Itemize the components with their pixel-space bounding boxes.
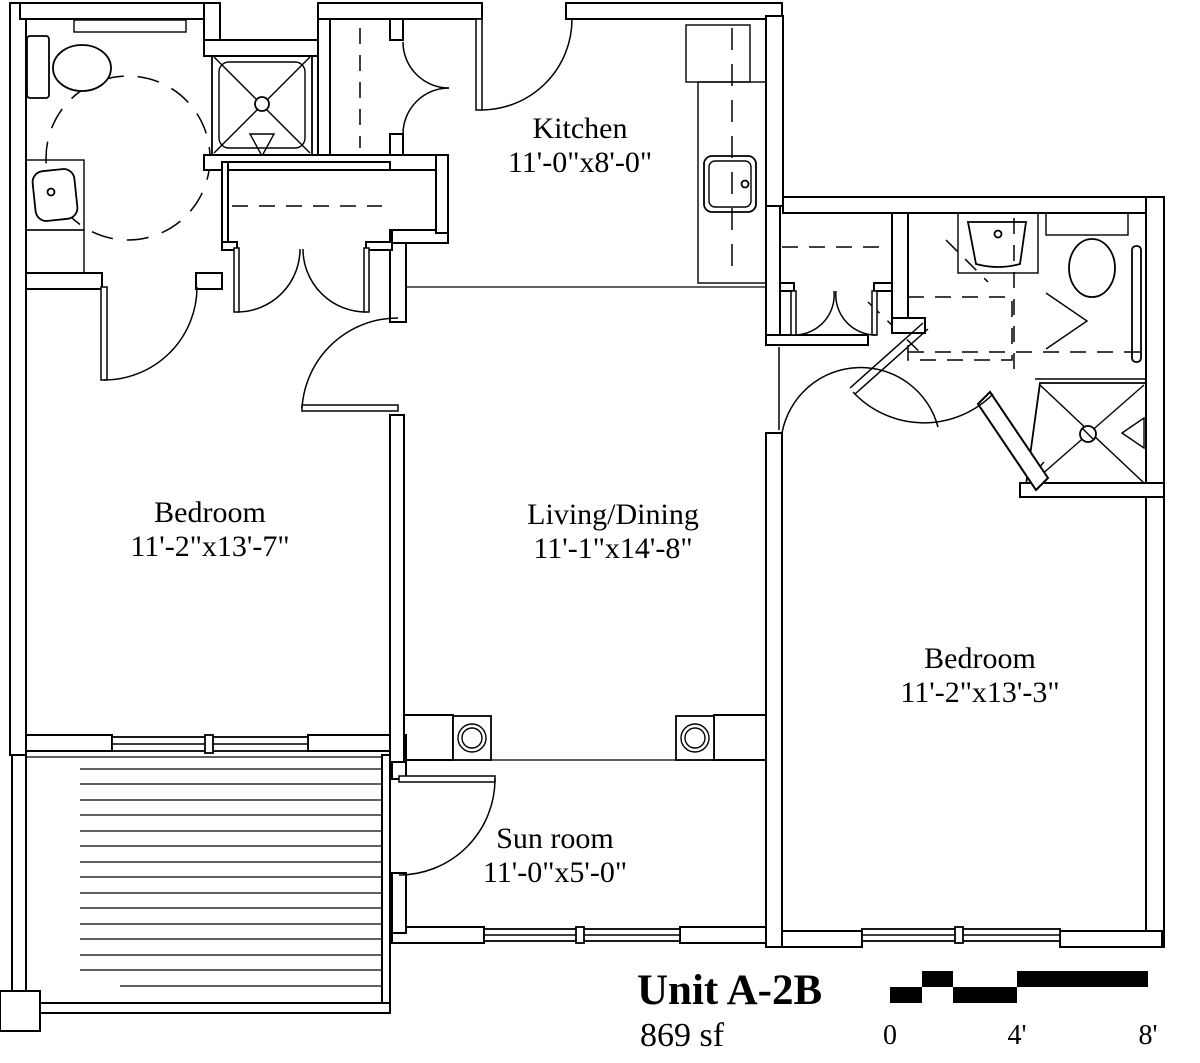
bedroom-left-label: Bedroom bbox=[154, 496, 266, 529]
sun-room-dims: 11'-0"x5'-0" bbox=[483, 856, 627, 889]
bedroom-left-dims: 11'-2"x13'-7" bbox=[130, 530, 289, 563]
deck-boards bbox=[80, 769, 384, 986]
wall-top-kitchen bbox=[566, 3, 782, 19]
kitchen-fixtures bbox=[686, 25, 766, 283]
bedroom1-closet-doors bbox=[234, 248, 369, 312]
shower-icon bbox=[1026, 379, 1148, 485]
scale-bar: 0 4' 8' bbox=[883, 971, 1158, 1051]
kitchen-dims: 11'-0"x8'-0" bbox=[508, 146, 652, 179]
wall-top-closet bbox=[318, 3, 482, 19]
deck-rail-right bbox=[382, 755, 390, 1013]
bathroom-1 bbox=[26, 20, 312, 273]
bathroom1-door bbox=[101, 287, 197, 380]
wall-bedroom2-left bbox=[766, 433, 782, 947]
vanity-sink-icon bbox=[26, 160, 84, 273]
sun-room-label: Sun room bbox=[496, 822, 614, 855]
floor-plan-svg: Kitchen 11'-0"x8'-0" Bedroom 11'-2"x13'-… bbox=[0, 0, 1200, 1063]
fridge-icon bbox=[686, 25, 750, 82]
wall-top-right-wing bbox=[783, 197, 1164, 213]
entry-closet-bifold-doors bbox=[403, 42, 449, 134]
sunroom-door bbox=[399, 776, 495, 875]
wall-top-bath bbox=[20, 3, 212, 19]
wall-right bbox=[1146, 197, 1164, 947]
kitchen-label: Kitchen bbox=[533, 112, 628, 145]
floor-plan-page: Kitchen 11'-0"x8'-0" Bedroom 11'-2"x13'-… bbox=[0, 0, 1200, 1063]
unit-area: 869 sf bbox=[640, 1017, 725, 1054]
title-block: Unit A-2B 869 sf bbox=[637, 967, 822, 1054]
coat-closet-doors bbox=[791, 291, 877, 335]
deck-post bbox=[0, 991, 40, 1031]
grab-bar-icon bbox=[1132, 246, 1141, 362]
sunroom-columns bbox=[398, 715, 766, 760]
deck-rail-bottom bbox=[26, 1003, 390, 1013]
kitchen-sink-icon bbox=[704, 156, 756, 212]
toilet-icon bbox=[27, 36, 111, 98]
column-icon bbox=[676, 716, 714, 760]
wall-left bbox=[10, 3, 26, 755]
living-dining-dims: 11'-1"x14'-8" bbox=[533, 532, 692, 565]
bedroom-right-dims: 11'-2"x13'-3" bbox=[900, 676, 1059, 709]
room-labels: Kitchen 11'-0"x8'-0" Bedroom 11'-2"x13'-… bbox=[130, 112, 1059, 889]
wall-bedroom1-living bbox=[390, 415, 404, 762]
deck-rail-left bbox=[12, 755, 26, 995]
bedroom1-door bbox=[302, 318, 398, 411]
toilet-icon bbox=[1046, 213, 1128, 297]
mirror-shelf-icon bbox=[74, 20, 186, 32]
bathroom2-door bbox=[850, 323, 993, 423]
window-bedroom1 bbox=[112, 735, 308, 753]
scale-tick-8: 8' bbox=[1138, 1020, 1157, 1051]
window-bedroom2 bbox=[862, 927, 1060, 943]
column-icon bbox=[453, 716, 491, 760]
bedroom-right-label: Bedroom bbox=[924, 642, 1036, 675]
living-dining-label: Living/Dining bbox=[527, 498, 699, 531]
shower-icon bbox=[212, 55, 312, 156]
scale-tick-0: 0 bbox=[883, 1020, 897, 1051]
wall-kitchen-right bbox=[766, 16, 783, 206]
window-sunroom bbox=[484, 927, 680, 943]
entry-door bbox=[476, 19, 572, 110]
unit-title: Unit A-2B bbox=[637, 967, 822, 1014]
scale-tick-4: 4' bbox=[1007, 1020, 1026, 1051]
